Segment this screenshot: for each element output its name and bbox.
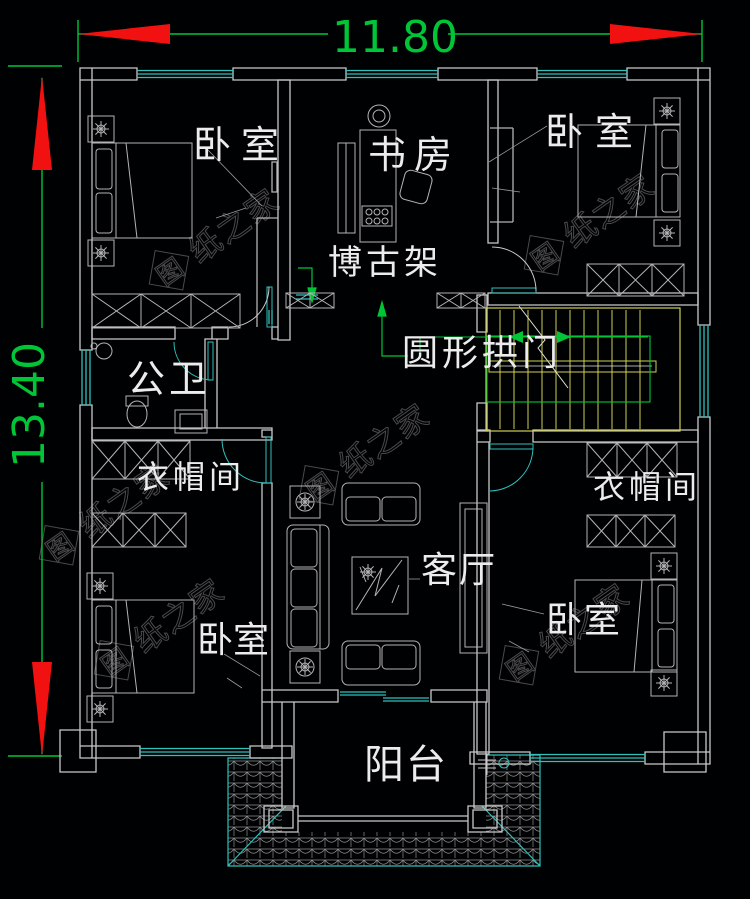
svg-text:纸之家: 纸之家 [557, 166, 662, 256]
arrow-up-icon [32, 76, 52, 170]
arrow-down-icon [32, 662, 52, 756]
label-round-arch: 圆形拱门 [402, 333, 562, 374]
floor-plan-screenshot: 11.80 13.40 图 纸之家 图 纸之家 图 纸之家 图 纸之家 图 纸之… [0, 0, 750, 899]
floor-plan-canvas: 11.80 13.40 图 纸之家 图 纸之家 图 纸之家 图 纸之家 图 纸之… [0, 0, 750, 899]
svg-text:图: 图 [151, 253, 190, 292]
label-bedroom-top-right: 卧室 [545, 110, 645, 154]
watermark: 图 纸之家 [135, 176, 289, 304]
svg-text:图: 图 [41, 528, 80, 567]
window-bathroom [82, 350, 90, 405]
balcony-sliding-door [340, 692, 429, 701]
label-bedroom-top-left: 卧室 [193, 123, 289, 167]
svg-text:图: 图 [501, 648, 540, 687]
svg-text:图: 图 [526, 238, 565, 277]
svg-text:纸之家: 纸之家 [332, 396, 437, 486]
label-cloakroom-right: 衣帽间 [593, 468, 701, 506]
window-top-middle [346, 71, 438, 78]
window-bottom-right [530, 755, 645, 762]
wardrobe-bedroom-top-left [92, 294, 240, 328]
label-bedroom-bottom-right: 卧室 [546, 600, 622, 641]
window-top-right [537, 71, 627, 78]
coffee-table [352, 557, 408, 614]
leader-up-arrow-icon [378, 302, 386, 316]
label-living-room: 客厅 [421, 550, 497, 591]
label-bedroom-bottom-left: 卧室 [197, 620, 269, 661]
antique-shelf-left [286, 293, 334, 308]
label-balcony: 阳台 [364, 742, 448, 788]
window-bottom-left [140, 749, 250, 756]
arrow-left-icon [78, 24, 170, 44]
bed-top-left [88, 116, 192, 266]
label-study: 书房 [368, 133, 460, 177]
dimension-height-value: 13.40 [4, 342, 55, 468]
door-bedroom-bottom-right [490, 444, 533, 491]
dimension-width-value: 11.80 [332, 12, 458, 63]
label-antique-shelf: 博古架 [328, 243, 442, 283]
label-bathroom: 公卫 [127, 357, 211, 401]
balcony-columns [264, 806, 502, 832]
wardrobe-bedroom-top-right [587, 264, 684, 296]
window-top-left [137, 71, 233, 78]
svg-text:纸之家: 纸之家 [182, 181, 287, 271]
door-bedroom-top-left [229, 287, 272, 327]
label-cloakroom-left: 衣帽间 [137, 458, 245, 496]
wardrobe-cloakroom-right-2 [587, 515, 675, 547]
window-stairs [700, 325, 708, 417]
arrow-right-icon [610, 24, 702, 44]
